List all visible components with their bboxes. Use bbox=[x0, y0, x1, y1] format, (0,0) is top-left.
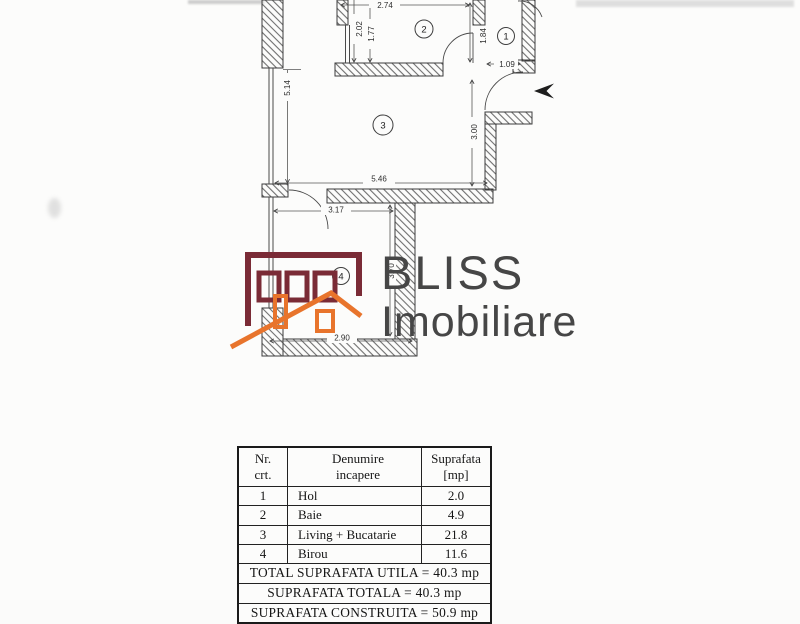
col-header-nr: Nr. crt. bbox=[238, 447, 288, 487]
table-row: 3 Living + Bucatarie 21.8 bbox=[238, 525, 491, 544]
svg-text:4: 4 bbox=[338, 272, 343, 283]
svg-text:1.09: 1.09 bbox=[499, 60, 515, 69]
table-row: 4 Birou 11.6 bbox=[238, 544, 491, 563]
entrance-arrow-icon bbox=[534, 84, 554, 99]
scanned-floor-plan-page: 2.74 2.02 1.77 1.84 1.09 5.14 bbox=[0, 0, 800, 600]
svg-text:3.00: 3.00 bbox=[470, 124, 479, 140]
door-arc-entry bbox=[485, 72, 523, 110]
table-row: 1 Hol 2.0 bbox=[238, 487, 491, 506]
table-header-row: Nr. crt. Denumire incapere Suprafata [mp… bbox=[238, 447, 491, 487]
svg-text:3: 3 bbox=[380, 121, 385, 132]
col-header-suprafata: Suprafata [mp] bbox=[422, 447, 492, 487]
dim-5-14: 5.14 bbox=[282, 70, 301, 184]
svg-text:1.84: 1.84 bbox=[479, 28, 488, 44]
door-arc-baie bbox=[443, 33, 473, 63]
dim-5-46: 5.46 bbox=[275, 173, 487, 184]
brand-name: BLISS bbox=[381, 249, 524, 296]
dim-3-00: 3.00 bbox=[466, 80, 479, 186]
svg-text:5.14: 5.14 bbox=[283, 80, 292, 96]
svg-text:2.90: 2.90 bbox=[334, 334, 350, 343]
total-totala-row: SUPRAFATA TOTALA = 40.3 mp bbox=[238, 583, 491, 603]
svg-text:2: 2 bbox=[421, 25, 426, 36]
svg-text:1.77: 1.77 bbox=[367, 26, 376, 42]
dim-2-02: 2.02 bbox=[352, 0, 364, 62]
dim-3-17: 3.17 bbox=[274, 204, 393, 215]
brand-subname: Imobiliare bbox=[381, 299, 577, 345]
table-row: 2 Baie 4.9 bbox=[238, 506, 491, 525]
total-construita-row: SUPRAFATA CONSTRUITA = 50.9 mp bbox=[238, 603, 491, 623]
svg-text:1: 1 bbox=[503, 32, 508, 43]
svg-text:2.74: 2.74 bbox=[377, 1, 393, 10]
svg-text:3.17: 3.17 bbox=[328, 206, 344, 215]
room-areas-table: Nr. crt. Denumire incapere Suprafata [mp… bbox=[237, 446, 492, 624]
dim-2-74: 2.74 bbox=[341, 0, 469, 10]
svg-text:2.02: 2.02 bbox=[355, 21, 364, 37]
dim-1-77: 1.77 bbox=[365, 8, 376, 62]
col-header-denumire: Denumire incapere bbox=[288, 447, 422, 487]
svg-text:5.46: 5.46 bbox=[371, 175, 387, 184]
total-utila-row: TOTAL SUPRAFATA UTILA = 40.3 mp bbox=[238, 564, 491, 584]
dim-1-09: 1.09 bbox=[487, 59, 520, 69]
